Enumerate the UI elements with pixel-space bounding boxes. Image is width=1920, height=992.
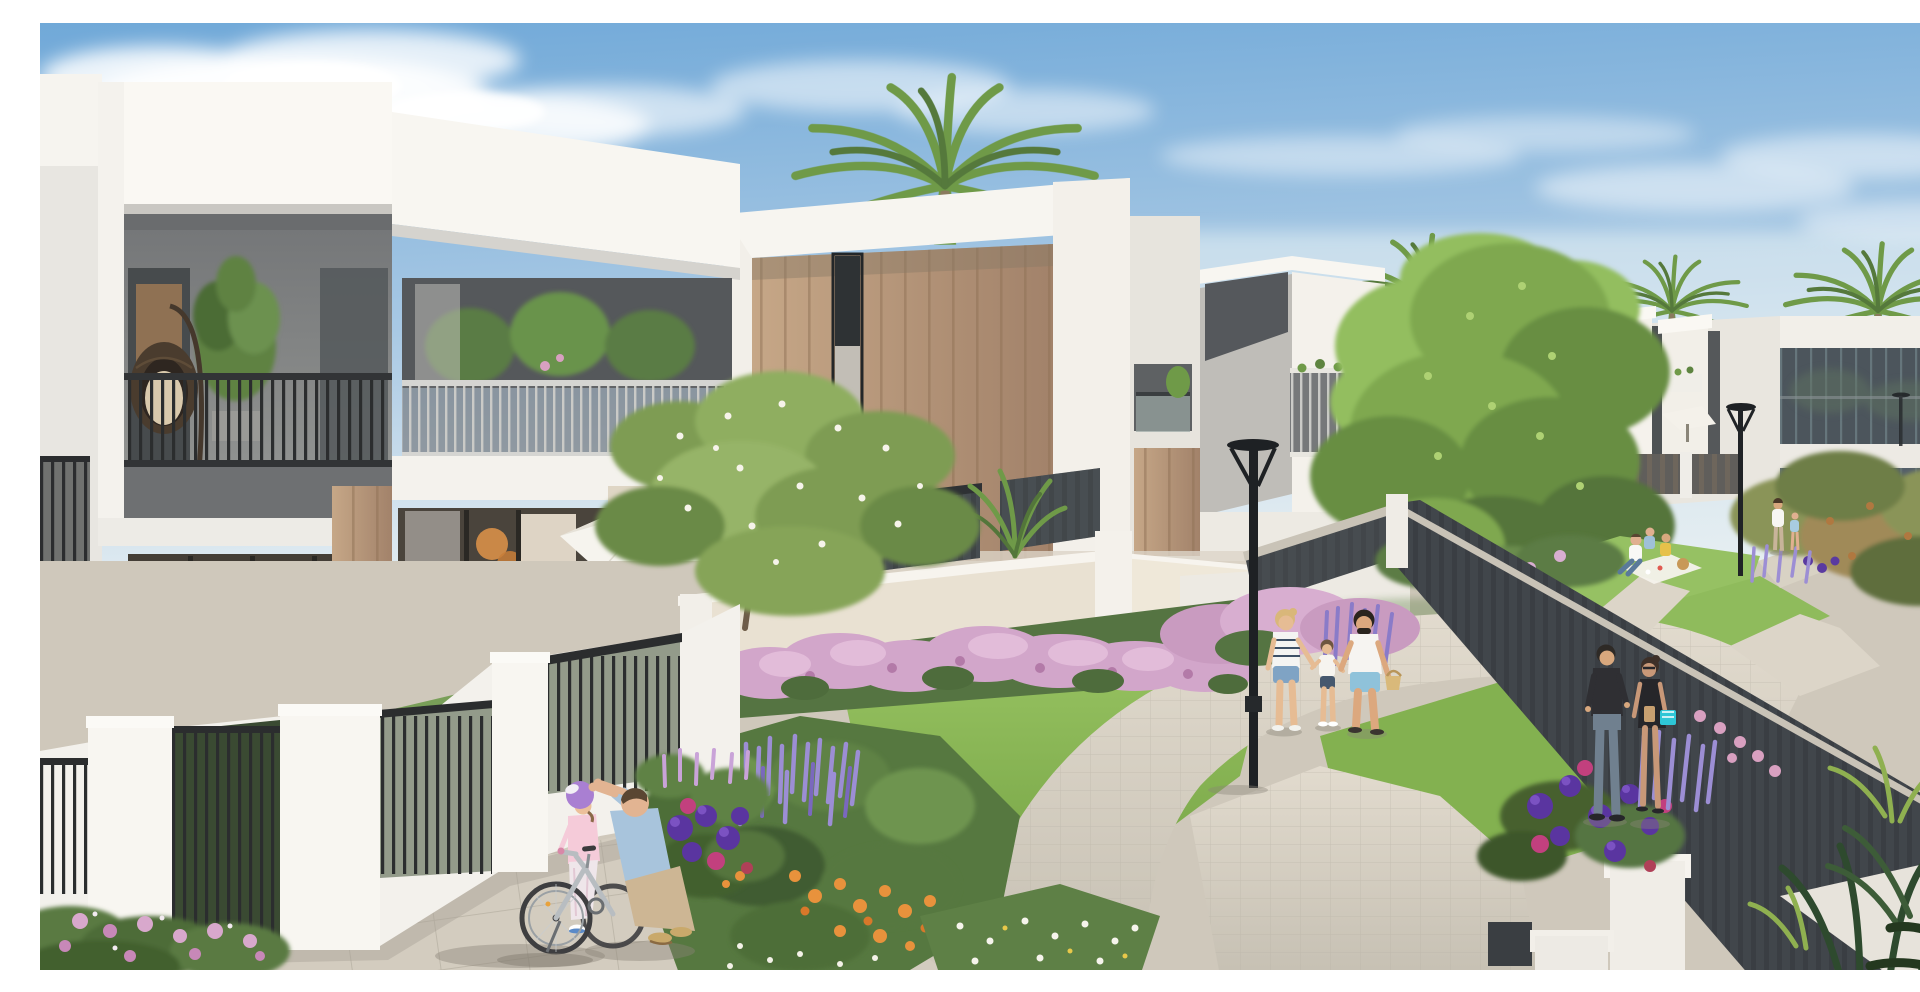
balcony-railing [124, 373, 392, 467]
bottom-frame-bar [40, 970, 1920, 976]
community-render: Sunny 3D architectural rendering of a mo… [40, 16, 1920, 976]
garden-gate [172, 726, 280, 951]
render-canvas: Sunny 3D architectural rendering of a mo… [40, 16, 1920, 976]
top-frame-bar [40, 16, 1920, 23]
